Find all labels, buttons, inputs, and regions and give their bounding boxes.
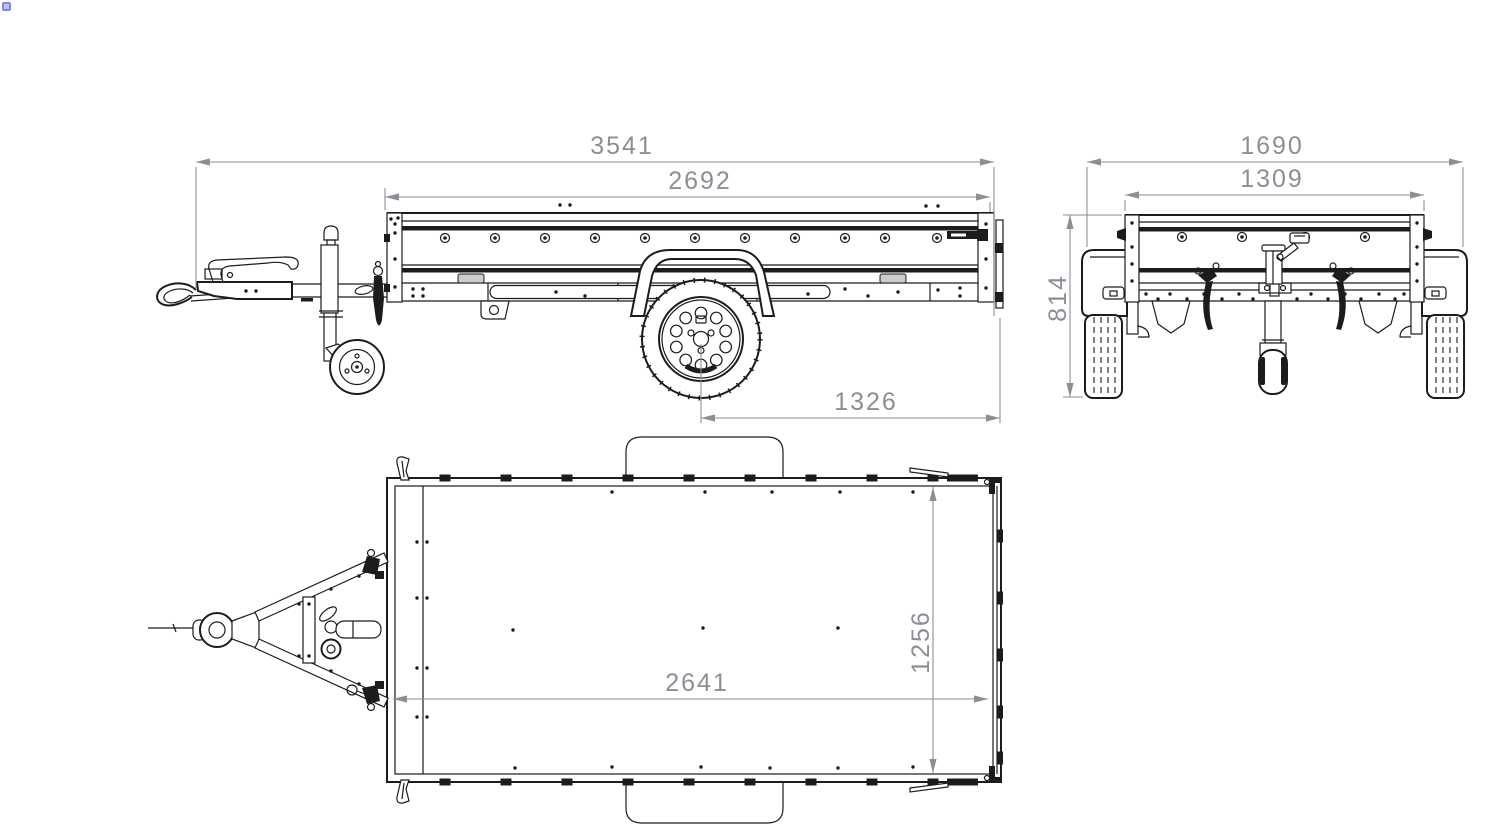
- top-rail: [402, 226, 978, 231]
- dim-axle-to-rear-label: 1326: [834, 388, 898, 416]
- tailgate-latch-top: [947, 475, 978, 482]
- dim-inner-width-label: 1256: [907, 610, 935, 674]
- dim-overall-width-label: 1690: [1240, 132, 1304, 160]
- top-view: 2641 1256: [148, 437, 1003, 823]
- right-post: [1410, 215, 1424, 302]
- clamp-lever: [354, 262, 384, 326]
- jockey-wheel-side: [319, 226, 384, 394]
- hitch-bracket: [481, 301, 509, 319]
- tailgate-latch-bottom: [947, 779, 978, 786]
- tire-bulge-top: [626, 437, 783, 479]
- trailer-drawing: 3541 2692 1326: [0, 0, 1500, 840]
- coupler-top: [200, 613, 234, 647]
- jockey-wheel-rear: [1259, 301, 1287, 394]
- dim-bed-length: 2692: [385, 167, 990, 212]
- marker-light-left: [1103, 287, 1124, 299]
- side-view: 3541 2692 1326: [157, 132, 1003, 423]
- dim-body-width-label: 1309: [1240, 165, 1304, 193]
- dim-body-height-label: 814: [1044, 274, 1072, 322]
- dim-body-width: 1309: [1125, 165, 1424, 211]
- marker-light-right: [1425, 287, 1446, 299]
- coupling-head: [197, 257, 298, 299]
- fender-left: [1082, 250, 1127, 316]
- canvas: 3541 2692 1326: [0, 0, 1500, 840]
- tire-bulge-bottom: [626, 781, 783, 823]
- dim-overall-length-label: 3541: [590, 132, 654, 160]
- dim-bed-length-label: 2692: [668, 167, 732, 195]
- winch-crank: [1262, 233, 1309, 284]
- crossbar: [303, 597, 315, 663]
- dim-inner-length-label: 2641: [665, 669, 729, 697]
- jockey-wheel-top: [336, 621, 381, 638]
- left-post: [1125, 215, 1139, 302]
- fender-right: [1422, 250, 1467, 316]
- tire-right: [1427, 315, 1464, 398]
- mid-rail: [402, 268, 978, 273]
- rear-view: 1690 1309 814: [1044, 132, 1467, 398]
- tire-left: [1085, 315, 1122, 398]
- drawbar-top: [148, 550, 388, 711]
- drawbar-side: [292, 284, 387, 302]
